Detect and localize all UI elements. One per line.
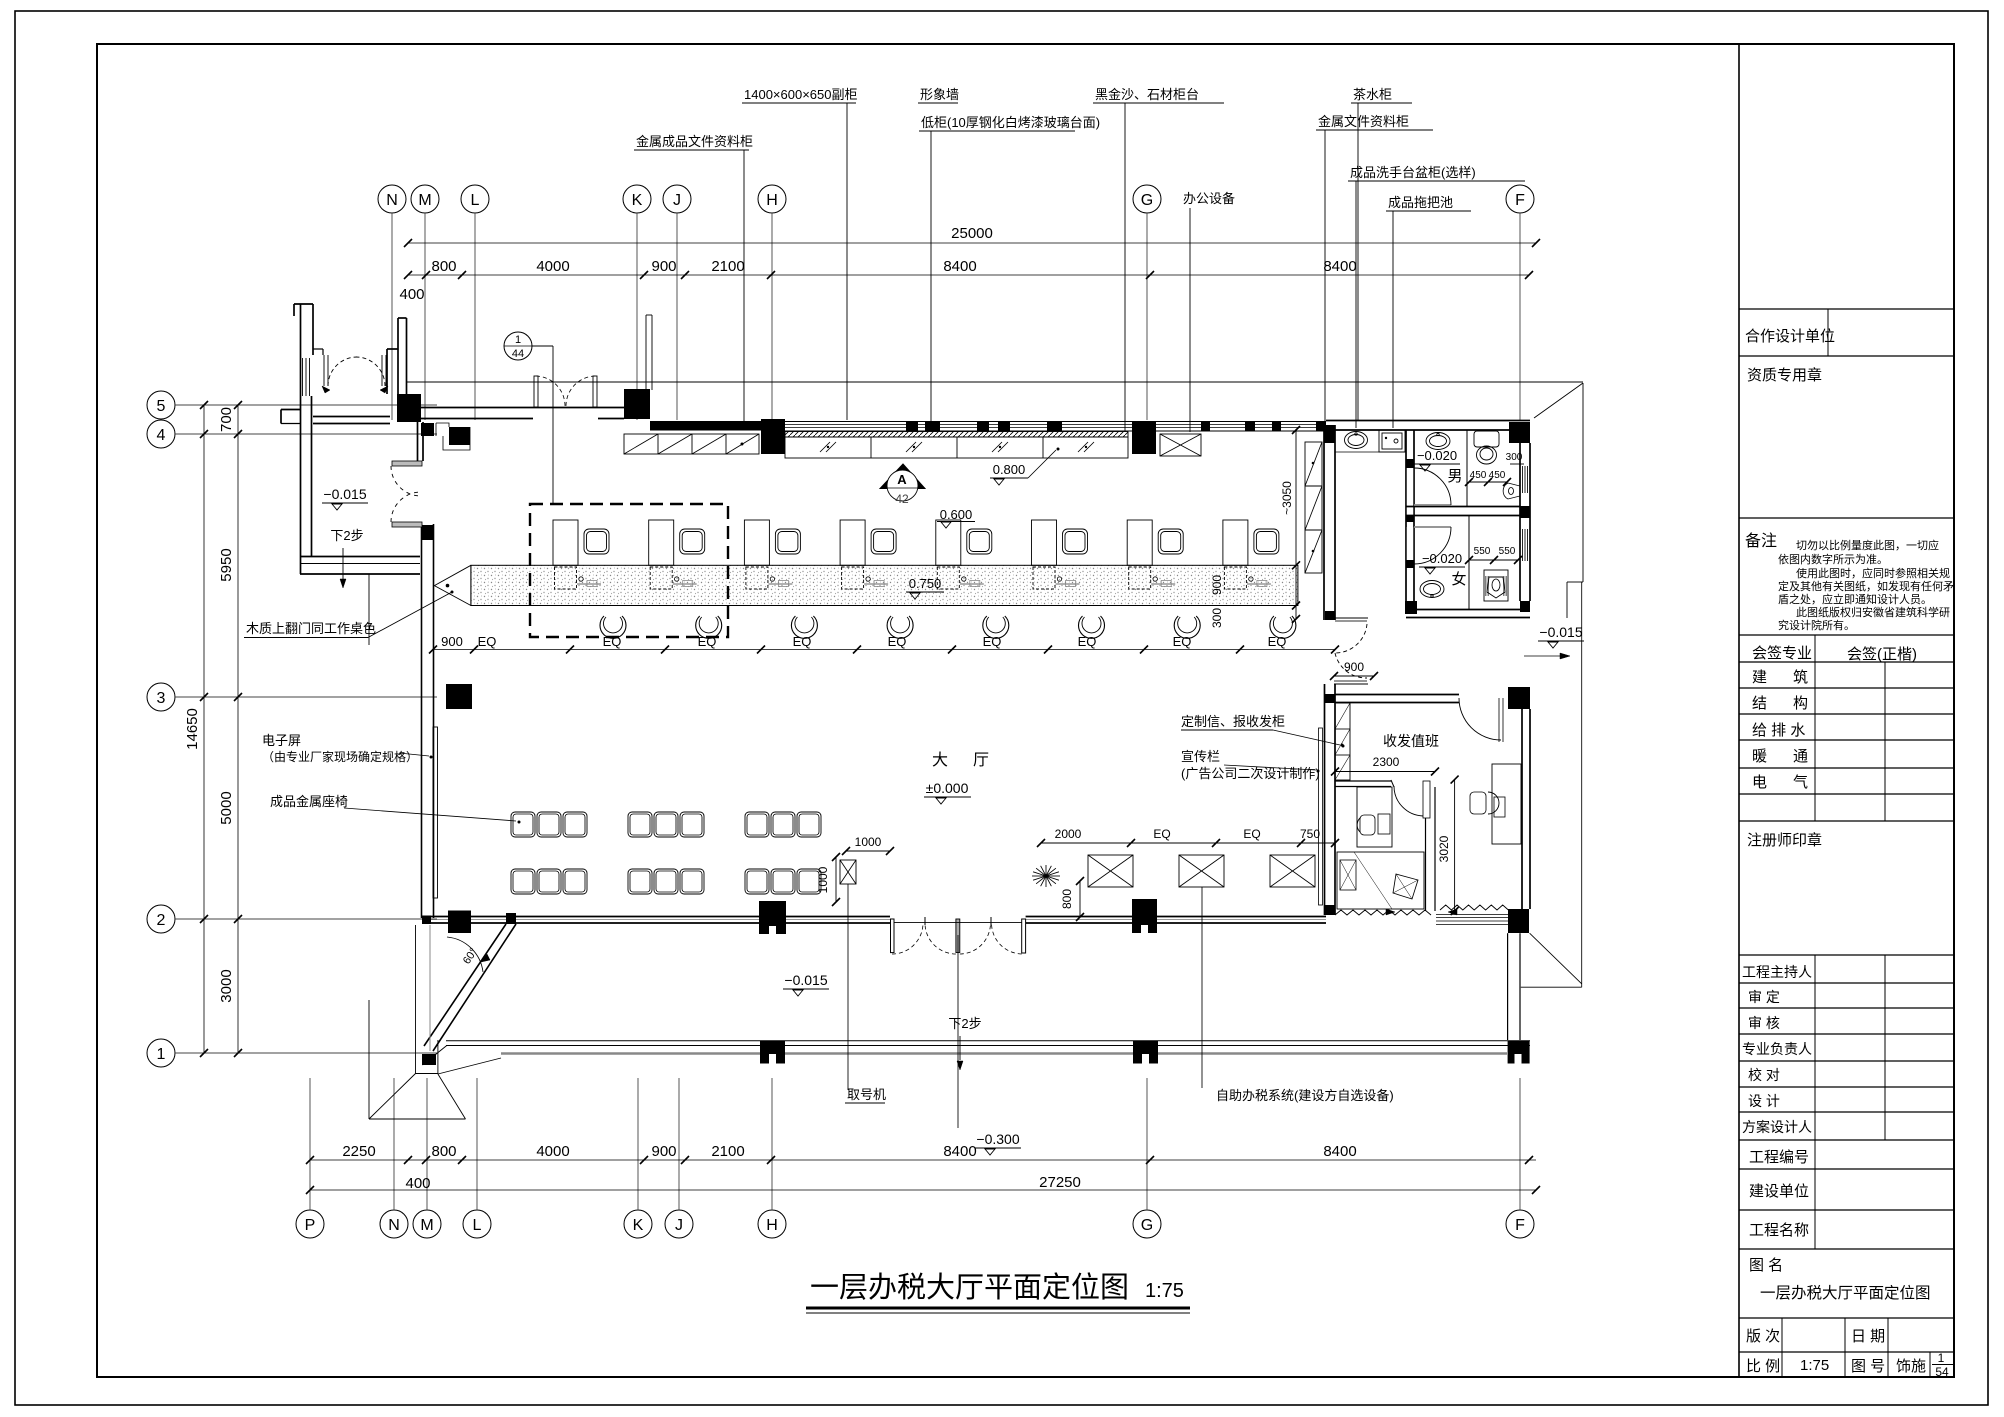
svg-text:下2步: 下2步 <box>948 1016 981 1031</box>
svg-text:J: J <box>673 192 681 209</box>
svg-text:黑金沙、石材柜台: 黑金沙、石材柜台 <box>1095 87 1199 102</box>
svg-text:3020: 3020 <box>1437 835 1451 862</box>
svg-text:300: 300 <box>1506 452 1523 463</box>
svg-text:K: K <box>632 192 643 209</box>
svg-text:F: F <box>1515 192 1525 209</box>
svg-text:EQ: EQ <box>698 634 717 649</box>
svg-text:44: 44 <box>512 348 524 360</box>
svg-text:0.600: 0.600 <box>940 507 973 522</box>
svg-text:厅: 厅 <box>973 752 989 769</box>
svg-text:气: 气 <box>1793 774 1808 791</box>
svg-text:茶水柜: 茶水柜 <box>1353 87 1392 102</box>
svg-text:方案设计人: 方案设计人 <box>1742 1119 1812 1135</box>
svg-text:大: 大 <box>932 751 948 769</box>
svg-text:审 定: 审 定 <box>1748 989 1780 1005</box>
svg-text:EQ: EQ <box>1078 634 1097 649</box>
svg-text:版 次: 版 次 <box>1746 1328 1780 1345</box>
svg-text:1: 1 <box>1938 1351 1945 1365</box>
svg-text:取号机: 取号机 <box>847 1087 886 1102</box>
svg-text:2250: 2250 <box>342 1143 375 1160</box>
svg-text:750: 750 <box>1300 827 1320 841</box>
svg-text:±0.000: ±0.000 <box>926 780 969 796</box>
svg-text:构: 构 <box>1793 695 1808 712</box>
svg-text:注册师印章: 注册师印章 <box>1747 831 1822 849</box>
svg-text:14650: 14650 <box>184 708 201 750</box>
svg-text:N: N <box>388 1217 400 1234</box>
svg-text:3: 3 <box>157 690 166 707</box>
svg-text:4000: 4000 <box>536 258 569 275</box>
svg-text:宣传栏: 宣传栏 <box>1181 749 1220 764</box>
svg-text:盾之处，应立即通知设计人员。: 盾之处，应立即通知设计人员。 <box>1778 592 1932 606</box>
svg-text:4000: 4000 <box>536 1143 569 1160</box>
svg-text:8400: 8400 <box>1323 1143 1356 1160</box>
svg-text:审 核: 审 核 <box>1748 1015 1780 1031</box>
svg-text:−0.015: −0.015 <box>784 972 827 988</box>
svg-text:900: 900 <box>1210 575 1224 595</box>
svg-text:EQ: EQ <box>478 634 497 649</box>
svg-text:1000: 1000 <box>855 835 882 849</box>
svg-text:(广告公司二次设计制作): (广告公司二次设计制作) <box>1181 766 1320 781</box>
svg-text:切勿以比例量度此图，一切应: 切勿以比例量度此图，一切应 <box>1796 538 1939 552</box>
svg-text:成品洗手台盆柜(选样): 成品洗手台盆柜(选样) <box>1350 165 1476 180</box>
svg-text:H: H <box>766 1217 778 1234</box>
svg-text:建设单位: 建设单位 <box>1749 1183 1809 1200</box>
svg-text:EQ: EQ <box>793 634 812 649</box>
svg-text:备注: 备注 <box>1745 532 1777 550</box>
svg-text:900: 900 <box>651 1143 676 1160</box>
svg-text:~3050: ~3050 <box>1280 481 1294 515</box>
svg-text:550: 550 <box>1474 546 1491 557</box>
svg-text:F: F <box>1515 1217 1525 1234</box>
svg-text:450: 450 <box>1489 470 1506 481</box>
svg-text:金属文件资料柜: 金属文件资料柜 <box>1318 114 1409 129</box>
svg-text:450: 450 <box>1470 470 1487 481</box>
svg-text:800: 800 <box>1060 889 1074 909</box>
svg-text:电: 电 <box>1752 774 1767 791</box>
svg-text:办公设备: 办公设备 <box>1183 191 1235 206</box>
svg-text:800: 800 <box>431 1143 456 1160</box>
svg-text:女: 女 <box>1451 570 1466 588</box>
svg-text:M: M <box>420 1217 433 1234</box>
svg-text:EQ: EQ <box>1153 827 1170 841</box>
svg-text:G: G <box>1141 192 1153 209</box>
svg-text:−0.020: −0.020 <box>1417 448 1457 463</box>
svg-text:工程编号: 工程编号 <box>1749 1149 1809 1166</box>
svg-text:−0.300: −0.300 <box>976 1131 1019 1147</box>
svg-text:通: 通 <box>1793 748 1808 765</box>
svg-text:400: 400 <box>399 286 424 303</box>
svg-text:1000: 1000 <box>816 866 830 893</box>
svg-text:男: 男 <box>1447 468 1462 485</box>
svg-text:EQ: EQ <box>983 634 1002 649</box>
svg-text:专业负责人: 专业负责人 <box>1742 1041 1812 1057</box>
svg-text:图 名: 图 名 <box>1749 1257 1783 1274</box>
svg-text:0.800: 0.800 <box>993 462 1026 477</box>
svg-text:400: 400 <box>405 1175 430 1192</box>
svg-text:形象墙: 形象墙 <box>920 87 959 102</box>
svg-text:−0.015: −0.015 <box>323 486 366 502</box>
svg-text:4: 4 <box>157 427 166 444</box>
svg-text:2300: 2300 <box>1373 755 1400 769</box>
svg-text:900: 900 <box>1344 660 1364 674</box>
svg-text:EQ: EQ <box>603 634 622 649</box>
svg-text:1400×600×650副柜: 1400×600×650副柜 <box>744 87 857 102</box>
svg-text:8400: 8400 <box>1323 258 1356 275</box>
svg-text:A: A <box>897 472 907 487</box>
svg-text:1:75: 1:75 <box>1800 1357 1829 1374</box>
svg-text:EQ: EQ <box>1268 634 1287 649</box>
svg-text:定及其他有关图纸，如发现有任何矛: 定及其他有关图纸，如发现有任何矛 <box>1778 579 1954 593</box>
svg-text:图 号: 图 号 <box>1851 1358 1885 1375</box>
svg-text:L: L <box>473 1217 482 1234</box>
svg-text:0.750: 0.750 <box>909 576 942 591</box>
svg-text:EQ: EQ <box>888 634 907 649</box>
svg-text:金属成品文件资料柜: 金属成品文件资料柜 <box>636 134 753 149</box>
svg-text:建: 建 <box>1752 669 1767 686</box>
svg-text:低柜(10厚钢化白烤漆玻璃台面): 低柜(10厚钢化白烤漆玻璃台面) <box>921 115 1100 130</box>
svg-text:−0.015: −0.015 <box>1539 624 1582 640</box>
svg-text:G: G <box>1141 1217 1153 1234</box>
svg-text:42: 42 <box>895 492 909 506</box>
svg-text:依图内数字所示为准。: 依图内数字所示为准。 <box>1778 552 1888 566</box>
svg-text:5950: 5950 <box>218 548 235 581</box>
svg-text:校 对: 校 对 <box>1748 1067 1780 1083</box>
svg-text:合作设计单位: 合作设计单位 <box>1745 328 1835 345</box>
svg-text:饰施: 饰施 <box>1896 1358 1926 1375</box>
svg-text:L: L <box>471 192 480 209</box>
svg-text:结: 结 <box>1752 695 1767 712</box>
svg-text:25000: 25000 <box>951 225 993 242</box>
svg-text:比 例: 比 例 <box>1746 1358 1780 1375</box>
svg-text:900: 900 <box>651 258 676 275</box>
svg-text:1: 1 <box>515 334 521 346</box>
svg-text:3000: 3000 <box>218 969 235 1002</box>
svg-text:2100: 2100 <box>711 1143 744 1160</box>
svg-text:木质上翻门同工作桌色: 木质上翻门同工作桌色 <box>246 621 376 636</box>
svg-text:550: 550 <box>1499 546 1516 557</box>
svg-text:使用此图时，应同时参照相关规: 使用此图时，应同时参照相关规 <box>1796 566 1950 580</box>
svg-text:EQ: EQ <box>1243 827 1260 841</box>
svg-text:资质专用章: 资质专用章 <box>1747 366 1822 384</box>
svg-text:收发值班: 收发值班 <box>1383 733 1439 749</box>
svg-text:M: M <box>418 192 431 209</box>
svg-text:K: K <box>633 1217 644 1234</box>
svg-text:N: N <box>386 192 398 209</box>
svg-text:8400: 8400 <box>943 258 976 275</box>
svg-text:自助办税系统(建设方自选设备): 自助办税系统(建设方自选设备) <box>1216 1088 1394 1103</box>
svg-text:2000: 2000 <box>1055 827 1082 841</box>
svg-text:工程主持人: 工程主持人 <box>1742 964 1812 980</box>
svg-text:P: P <box>305 1217 316 1234</box>
svg-text:5: 5 <box>157 398 166 415</box>
svg-text:2: 2 <box>157 912 166 929</box>
svg-text:究设计院所有。: 究设计院所有。 <box>1778 618 1855 632</box>
svg-text:J: J <box>675 1217 683 1234</box>
svg-text:1:75: 1:75 <box>1145 1280 1184 1302</box>
svg-text:会签(正楷): 会签(正楷) <box>1847 646 1917 663</box>
svg-text:会签专业: 会签专业 <box>1752 645 1812 662</box>
svg-text:900: 900 <box>441 634 463 649</box>
svg-text:700: 700 <box>218 407 235 432</box>
svg-text:暖: 暖 <box>1752 748 1767 765</box>
svg-text:−0.020: −0.020 <box>1422 551 1462 566</box>
svg-text:H: H <box>766 192 778 209</box>
svg-text:2100: 2100 <box>711 258 744 275</box>
svg-text:54: 54 <box>1935 1365 1949 1379</box>
svg-text:成品金属座椅: 成品金属座椅 <box>270 794 348 809</box>
svg-text:成品拖把池: 成品拖把池 <box>1388 195 1453 210</box>
svg-text:27250: 27250 <box>1039 1174 1081 1191</box>
svg-text:设 计: 设 计 <box>1748 1093 1780 1109</box>
svg-text:给 排 水: 给 排 水 <box>1752 722 1805 739</box>
svg-text:定制信、报收发柜: 定制信、报收发柜 <box>1181 714 1285 729</box>
svg-text:300: 300 <box>1210 608 1224 628</box>
svg-text:下2步: 下2步 <box>330 528 363 543</box>
svg-text:5000: 5000 <box>218 791 235 824</box>
svg-text:8400: 8400 <box>943 1143 976 1160</box>
svg-text:（由专业厂家现场确定规格）: （由专业厂家现场确定规格） <box>262 749 418 764</box>
svg-text:EQ: EQ <box>1173 634 1192 649</box>
svg-text:800: 800 <box>431 258 456 275</box>
svg-text:工程名称: 工程名称 <box>1749 1222 1809 1239</box>
svg-text:电子屏: 电子屏 <box>262 733 301 748</box>
svg-text:1: 1 <box>157 1046 166 1063</box>
svg-text:此图纸版权归安徽省建筑科学研: 此图纸版权归安徽省建筑科学研 <box>1796 605 1950 619</box>
svg-text:筑: 筑 <box>1793 669 1808 686</box>
svg-text:日 期: 日 期 <box>1851 1328 1885 1345</box>
svg-text:一层办税大厅平面定位图: 一层办税大厅平面定位图 <box>1760 1284 1931 1302</box>
svg-text:一层办税大厅平面定位图: 一层办税大厅平面定位图 <box>810 1271 1129 1304</box>
